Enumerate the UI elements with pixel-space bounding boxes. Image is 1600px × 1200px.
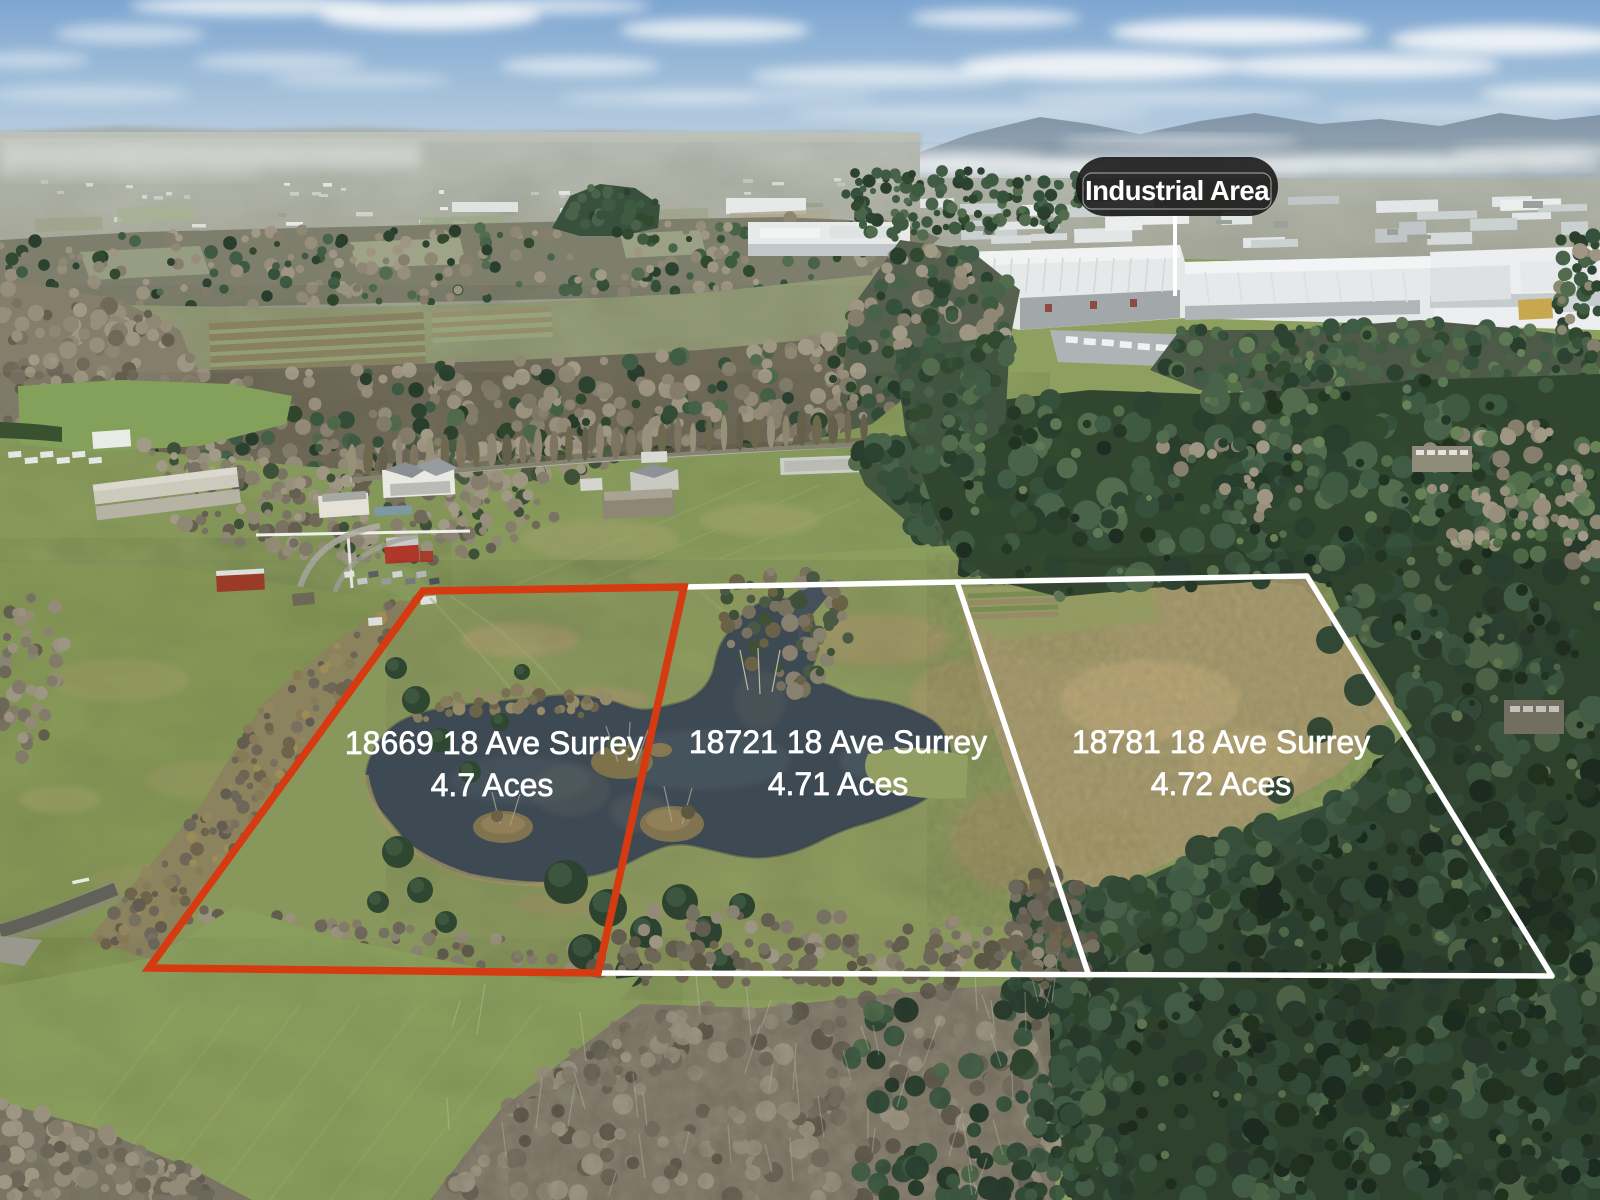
svg-text:4.72 Aces: 4.72 Aces xyxy=(1151,766,1292,802)
svg-text:18781 18 Ave Surrey: 18781 18 Ave Surrey xyxy=(1072,724,1370,760)
svg-text:Industrial Area: Industrial Area xyxy=(1085,175,1270,206)
svg-text:18669 18 Ave Surrey: 18669 18 Ave Surrey xyxy=(345,725,643,761)
svg-text:4.7 Aces: 4.7 Aces xyxy=(431,767,554,803)
svg-text:4.71 Aces: 4.71 Aces xyxy=(768,766,909,802)
svg-text:18721 18 Ave Surrey: 18721 18 Ave Surrey xyxy=(689,724,987,760)
